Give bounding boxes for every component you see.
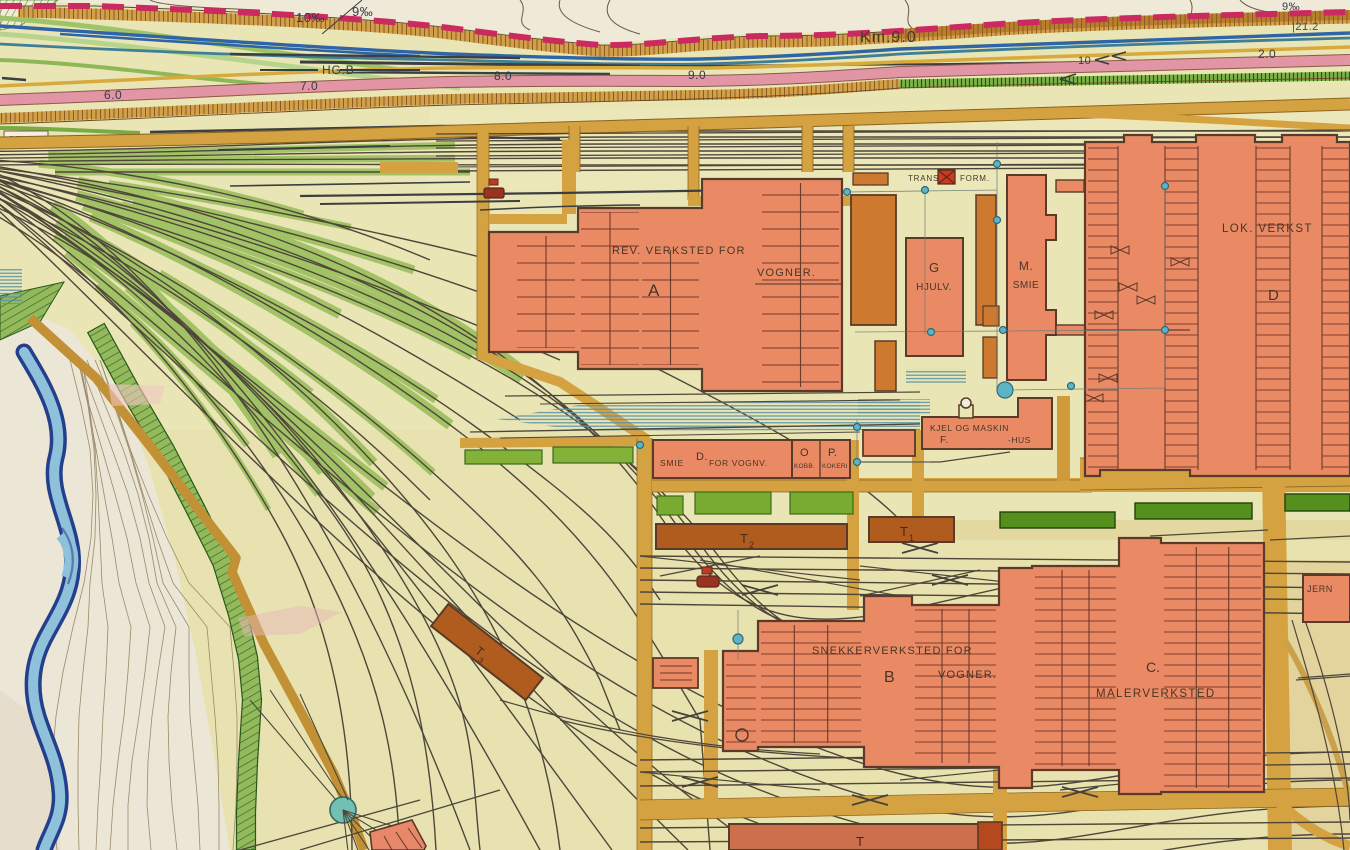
- svg-text:MALERVERKSTED: MALERVERKSTED: [1096, 688, 1216, 700]
- svg-text:VOGNER.: VOGNER.: [938, 669, 997, 681]
- svg-text:SNEKKERVERKSTED FOR: SNEKKERVERKSTED FOR: [812, 645, 973, 657]
- svg-text:D.: D.: [696, 451, 708, 463]
- svg-text:TRANS: TRANS: [908, 174, 939, 183]
- svg-text:JERN: JERN: [1307, 584, 1333, 594]
- svg-text:10: 10: [1078, 55, 1091, 67]
- svg-text:G: G: [929, 260, 939, 275]
- svg-text:6.0: 6.0: [104, 88, 122, 102]
- svg-text:8.0: 8.0: [494, 69, 512, 83]
- svg-text:KOKERI: KOKERI: [822, 463, 848, 470]
- svg-text:1: 1: [909, 533, 914, 543]
- svg-text:KJEL OG MASKIN: KJEL OG MASKIN: [930, 423, 1009, 433]
- svg-text:LOK. VERKST: LOK. VERKST: [1222, 223, 1313, 235]
- svg-text:SMIE: SMIE: [1013, 280, 1039, 291]
- svg-text:-HUS: -HUS: [1008, 435, 1031, 445]
- svg-text:2: 2: [749, 540, 754, 550]
- svg-text:VOGNER.: VOGNER.: [757, 267, 816, 279]
- svg-text:2.0: 2.0: [1258, 47, 1276, 61]
- svg-text:Km.9.0: Km.9.0: [860, 29, 917, 46]
- svg-text:9.0: 9.0: [688, 68, 706, 82]
- svg-text:B: B: [884, 669, 895, 686]
- svg-text:9‰: 9‰: [1282, 1, 1300, 13]
- svg-text:10‰: 10‰: [296, 10, 325, 25]
- svg-text:HJULV.: HJULV.: [916, 282, 952, 293]
- svg-text:O: O: [800, 447, 809, 459]
- svg-text:T: T: [900, 524, 908, 539]
- svg-text:D: D: [1268, 287, 1279, 304]
- svg-text:|21.2: |21.2: [1292, 21, 1319, 33]
- svg-text:7.0: 7.0: [300, 79, 318, 93]
- svg-text:KOBB.: KOBB.: [794, 463, 815, 470]
- svg-text:P.: P.: [828, 447, 837, 459]
- svg-text:FORM.: FORM.: [960, 174, 990, 183]
- svg-text:T: T: [740, 531, 748, 546]
- svg-text:F.: F.: [940, 435, 949, 446]
- svg-text:FOR VOGNV.: FOR VOGNV.: [709, 458, 768, 468]
- svg-text:SMIE: SMIE: [660, 458, 684, 468]
- svg-text:A: A: [648, 281, 660, 300]
- svg-text:M.: M.: [1019, 259, 1033, 273]
- svg-text:C.: C.: [1146, 659, 1160, 675]
- svg-text:T: T: [856, 834, 864, 849]
- svg-text:REV. VERKSTED FOR: REV. VERKSTED FOR: [612, 245, 746, 257]
